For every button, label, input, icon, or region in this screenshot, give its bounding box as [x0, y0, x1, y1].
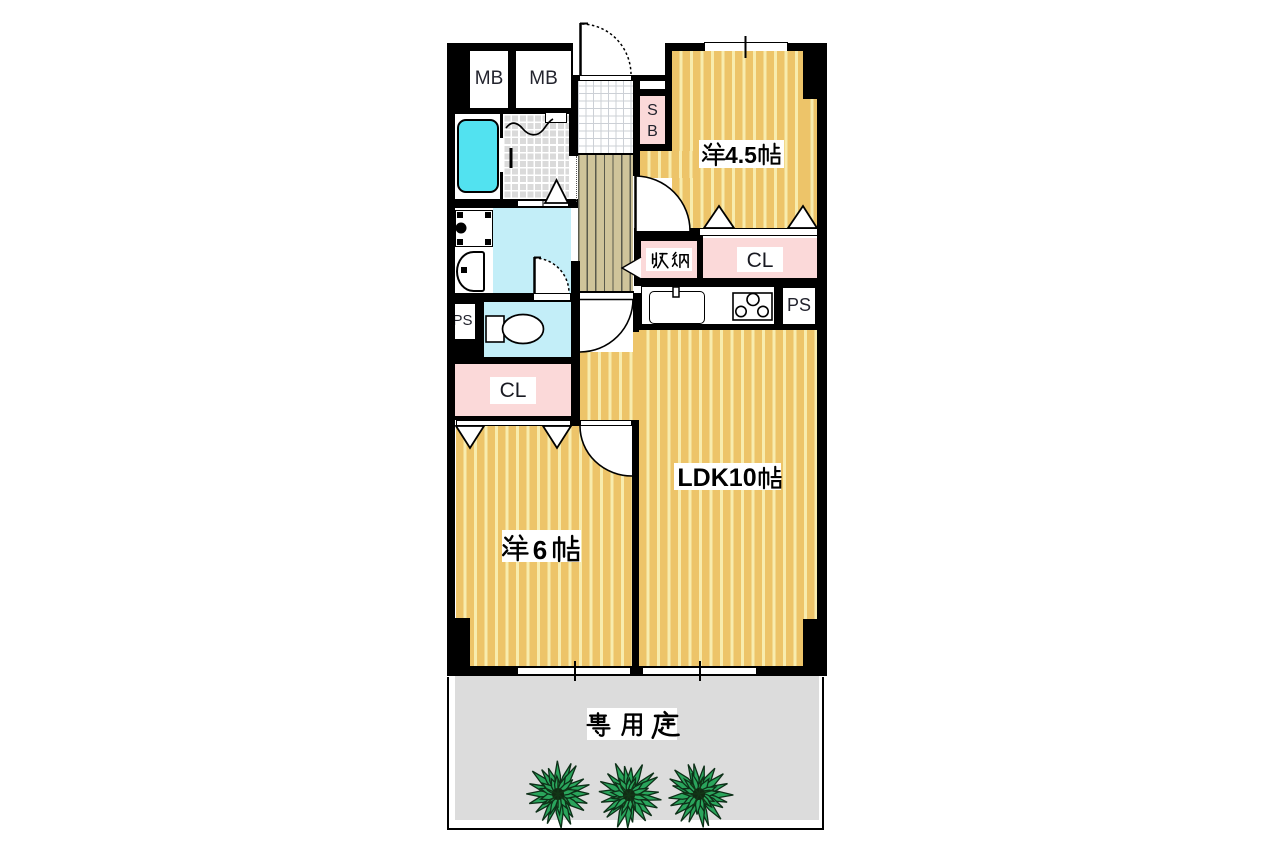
svg-text:6: 6 [533, 535, 547, 565]
svg-text:LDK10: LDK10 [677, 464, 756, 492]
svg-text:4.5: 4.5 [725, 142, 757, 168]
